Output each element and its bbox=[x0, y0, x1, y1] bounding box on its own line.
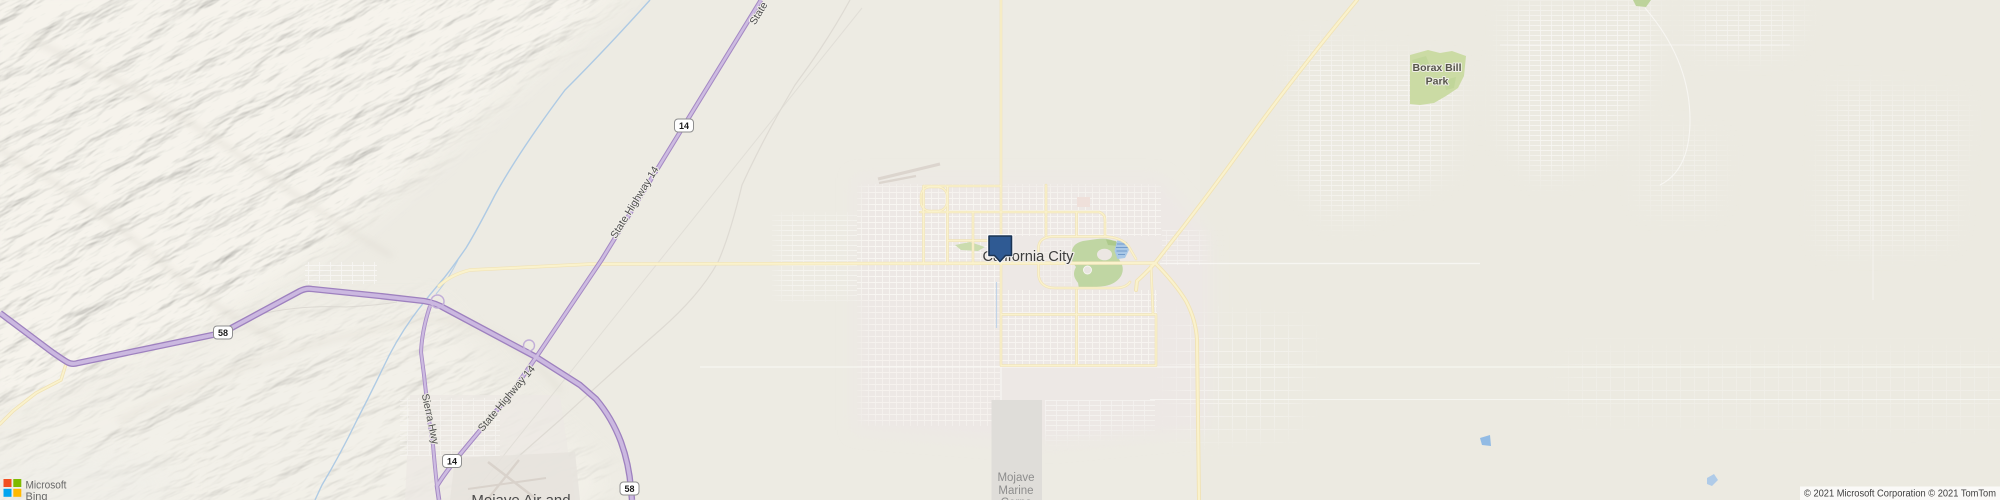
svg-text:© 2021 Microsoft Corporation ©: © 2021 Microsoft Corporation © 2021 TomT… bbox=[1804, 489, 1996, 500]
svg-text:Park: Park bbox=[1426, 76, 1449, 88]
svg-text:Bing: Bing bbox=[26, 491, 48, 500]
svg-text:58: 58 bbox=[218, 328, 228, 338]
svg-text:14: 14 bbox=[447, 457, 457, 467]
svg-text:14: 14 bbox=[679, 121, 689, 131]
svg-text:Borax Bill: Borax Bill bbox=[1412, 62, 1461, 74]
svg-text:Mojave: Mojave bbox=[997, 472, 1034, 484]
svg-text:58: 58 bbox=[624, 484, 634, 494]
svg-text:Mojave Air and: Mojave Air and bbox=[471, 492, 570, 500]
svg-text:Marine: Marine bbox=[998, 485, 1033, 497]
svg-text:Microsoft: Microsoft bbox=[26, 479, 67, 491]
